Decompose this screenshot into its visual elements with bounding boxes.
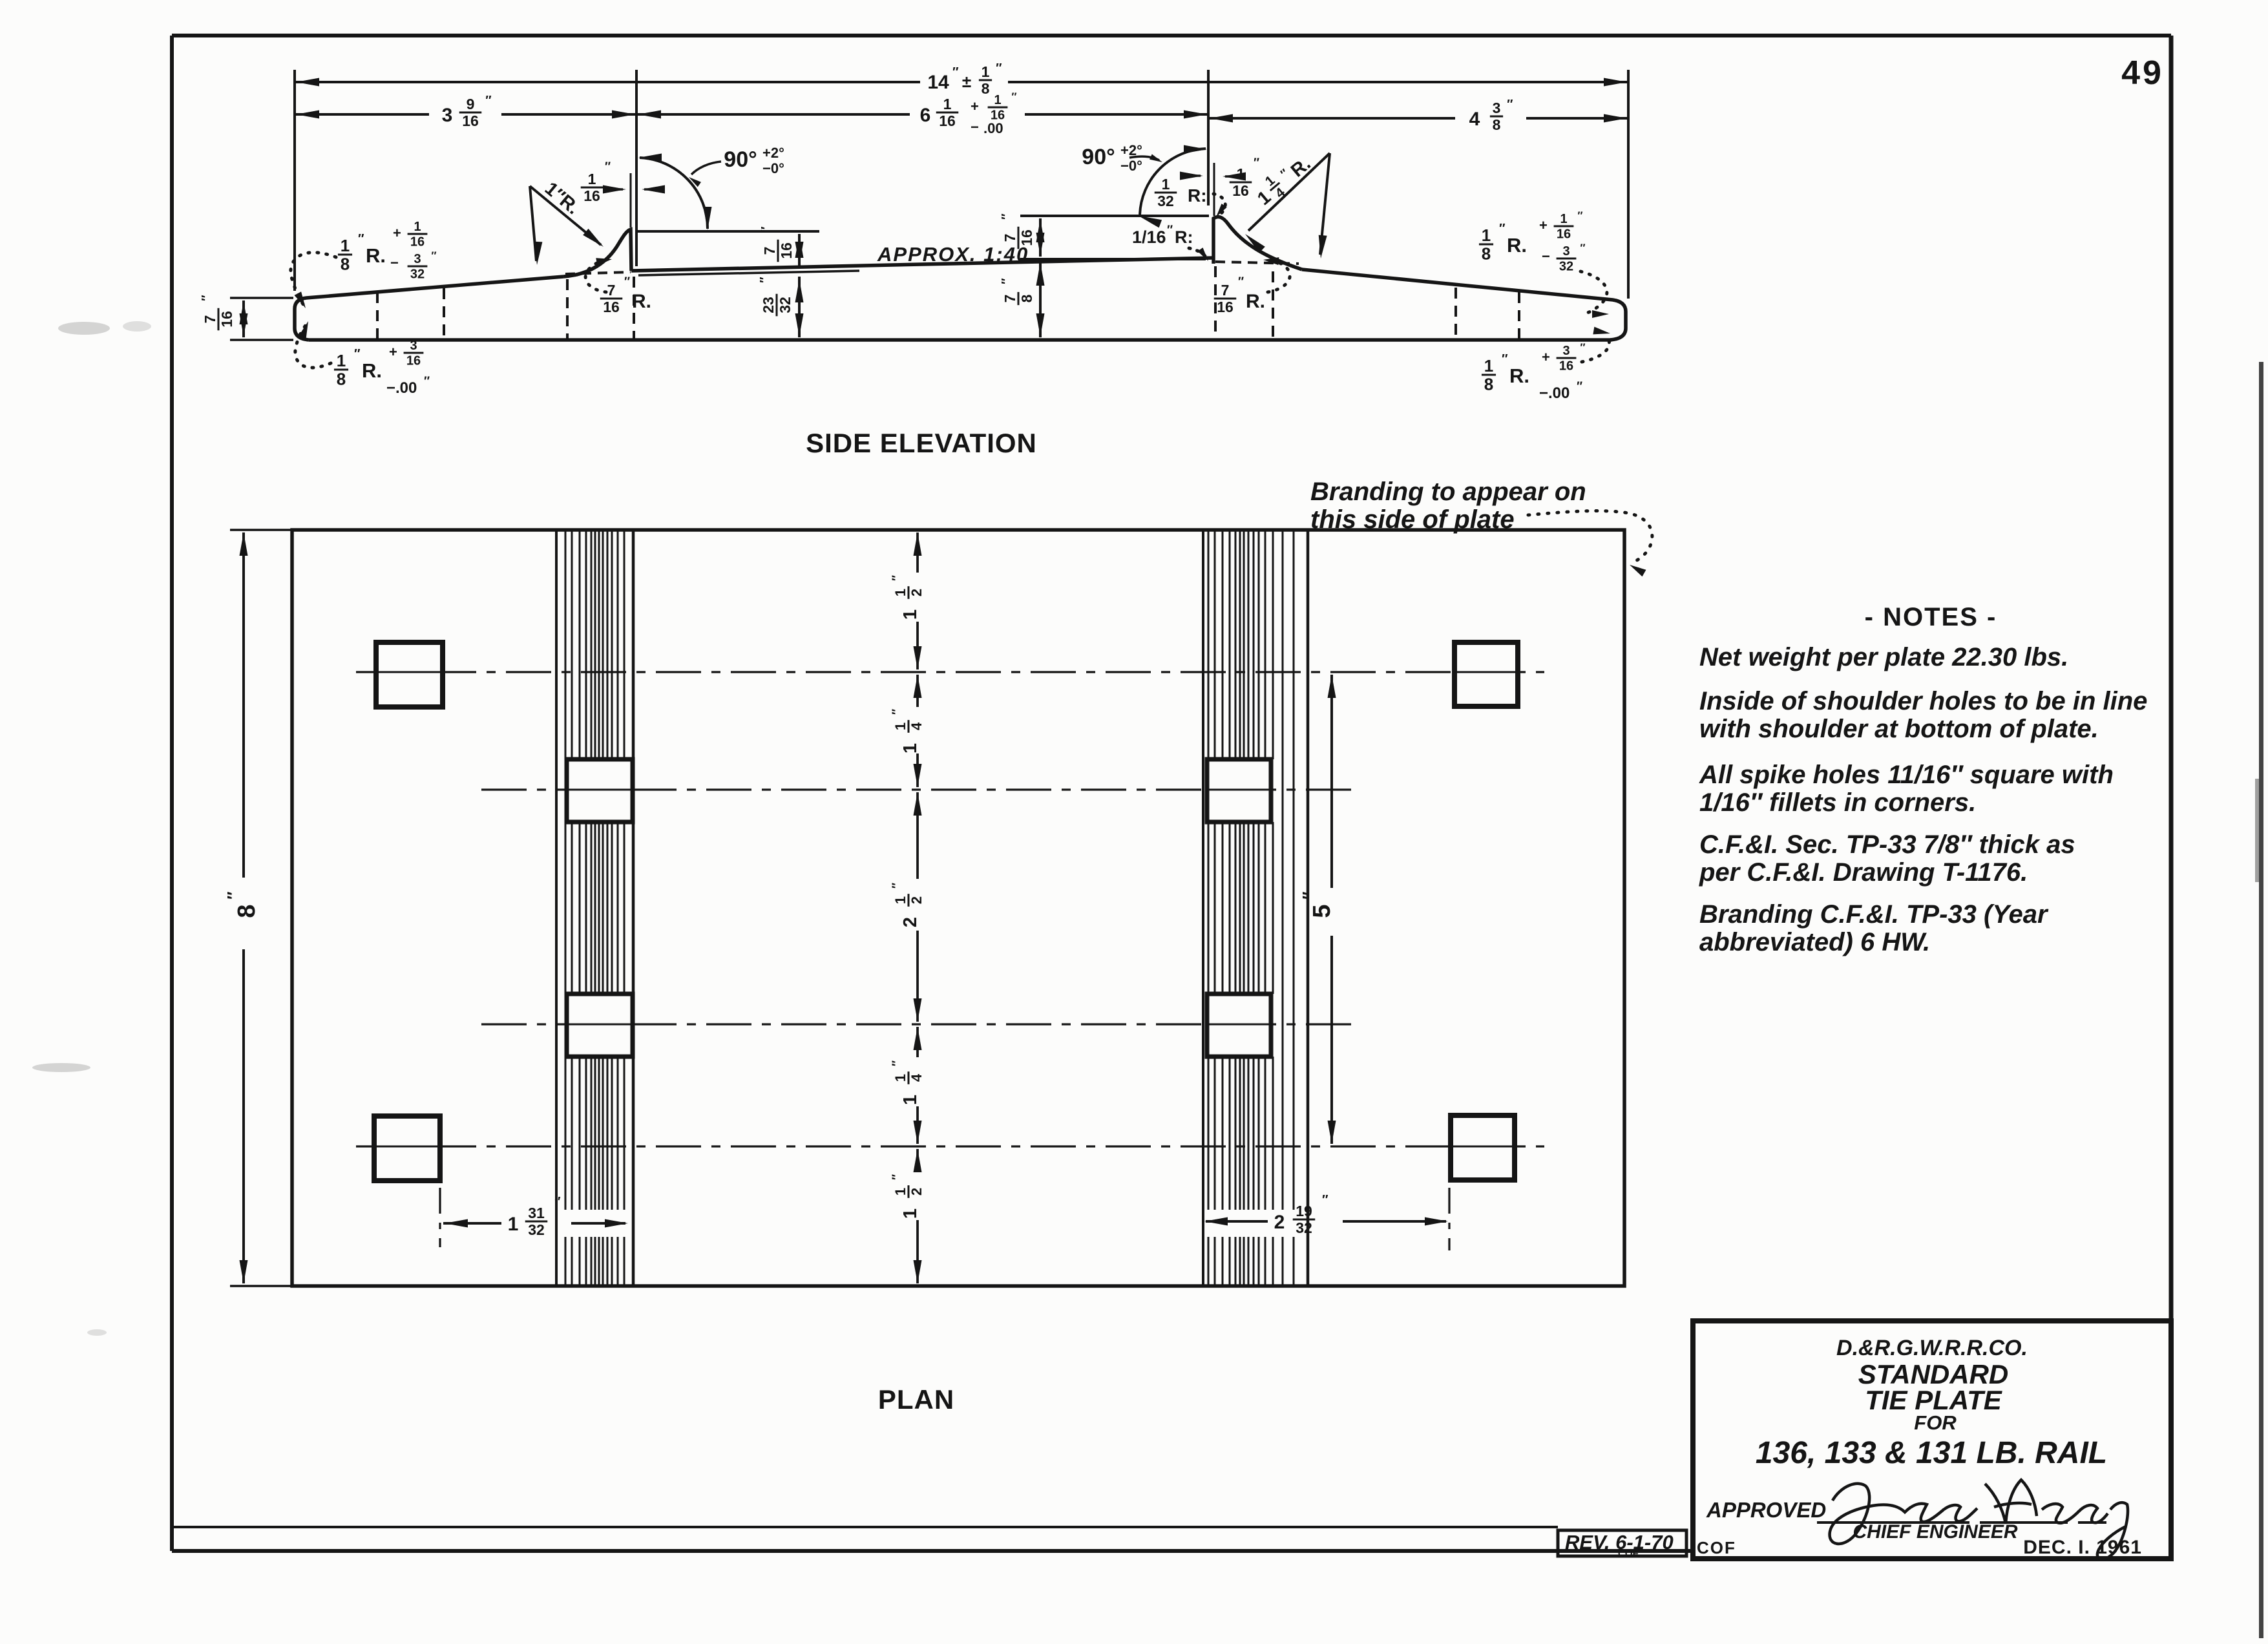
- svg-text:″: ″: [890, 709, 904, 715]
- svg-text:16: 16: [218, 311, 235, 328]
- svg-text:7: 7: [1221, 282, 1230, 299]
- svg-text:2: 2: [1274, 1212, 1285, 1233]
- svg-text:R.: R.: [632, 291, 651, 312]
- svg-text:1: 1: [337, 351, 346, 370]
- svg-text:16: 16: [778, 242, 795, 259]
- svg-text:4: 4: [908, 722, 925, 730]
- svg-text:4: 4: [908, 1073, 925, 1082]
- svg-text:″: ″: [1580, 341, 1585, 353]
- svg-text:1: 1: [1560, 212, 1567, 226]
- svg-text:1: 1: [1484, 356, 1493, 375]
- svg-text:8: 8: [337, 369, 346, 388]
- svg-text:Branding to appear on: Branding to appear on: [1310, 478, 1586, 506]
- svg-text:7: 7: [1002, 295, 1018, 303]
- svg-text:+: +: [389, 344, 397, 360]
- svg-text:″: ″: [1011, 90, 1016, 103]
- svg-text:7: 7: [202, 315, 218, 324]
- svg-text:2: 2: [900, 917, 921, 927]
- svg-text:8: 8: [1484, 374, 1493, 394]
- svg-text:″: ″: [224, 892, 243, 900]
- svg-text:″: ″: [358, 232, 364, 246]
- svg-text:136, 133 & 131 LB. RAIL: 136, 133 & 131 LB. RAIL: [1756, 1436, 2107, 1470]
- svg-text:″: ″: [605, 160, 611, 174]
- svg-text:3: 3: [1562, 244, 1570, 258]
- svg-text:″: ″: [424, 375, 430, 388]
- svg-text:APPROX. 1:40: APPROX. 1:40: [877, 243, 1029, 266]
- svg-text:3: 3: [1562, 344, 1570, 358]
- svg-text:3: 3: [414, 252, 421, 266]
- svg-text:R:: R:: [1188, 185, 1207, 205]
- svg-text:″: ″: [1000, 213, 1014, 220]
- svg-text:1/16″ fillets in corners.: 1/16″ fillets in corners.: [1699, 788, 1976, 817]
- svg-text:19: 19: [1296, 1203, 1312, 1219]
- svg-text:″: ″: [1299, 892, 1318, 900]
- svg-text:TIE PLATE: TIE PLATE: [1865, 1385, 2003, 1415]
- svg-text:90°: 90°: [1082, 145, 1115, 169]
- svg-text:2: 2: [908, 589, 925, 596]
- svg-text:+2°: +2°: [762, 145, 784, 161]
- svg-text:1: 1: [892, 589, 908, 596]
- svg-text:16: 16: [603, 299, 620, 315]
- svg-text:32: 32: [777, 297, 793, 313]
- svg-text:″: ″: [890, 575, 904, 581]
- svg-text:″: ″: [624, 275, 630, 289]
- svg-text:R.: R.: [362, 359, 382, 382]
- svg-text:32: 32: [1559, 260, 1573, 274]
- svg-text:−: −: [390, 255, 399, 271]
- svg-text:.00: .00: [983, 120, 1003, 136]
- svg-text:1: 1: [341, 236, 350, 255]
- svg-text:16: 16: [1557, 227, 1571, 242]
- svg-text:SIDE ELEVATION: SIDE ELEVATION: [806, 428, 1037, 458]
- svg-text:32: 32: [410, 268, 425, 282]
- svg-text:1: 1: [892, 1074, 908, 1082]
- svg-text:1: 1: [892, 722, 908, 730]
- svg-text:14: 14: [927, 72, 949, 93]
- svg-text:2: 2: [908, 1188, 925, 1196]
- svg-text:″: ″: [1499, 222, 1506, 236]
- svg-text:1: 1: [1482, 226, 1491, 245]
- svg-text:1: 1: [982, 63, 990, 80]
- svg-text:″: ″: [758, 277, 772, 283]
- svg-text:All spike holes 11/16″ square: All spike holes 11/16″ square with: [1699, 761, 2114, 789]
- svg-text:″: ″: [1577, 209, 1582, 222]
- svg-text:8: 8: [1018, 294, 1035, 302]
- svg-text:16: 16: [939, 112, 956, 129]
- svg-text:Inside of shoulder holes to be: Inside of shoulder holes to be in line: [1699, 687, 2147, 715]
- svg-text:32: 32: [528, 1221, 545, 1238]
- svg-text:Net weight per plate 22.30 lb: Net weight per plate 22.30 lbs.: [1699, 643, 2068, 671]
- svg-text:PLAN: PLAN: [878, 1384, 954, 1415]
- svg-text:COF: COF: [1697, 1538, 1736, 1557]
- svg-text:16: 16: [1559, 359, 1573, 374]
- svg-text:16: 16: [1018, 229, 1035, 246]
- svg-text:16: 16: [1217, 299, 1234, 315]
- svg-text:1: 1: [1162, 176, 1170, 193]
- svg-text:1: 1: [900, 609, 921, 620]
- svg-text:C.F.&I. Sec. TP-33 7/8″ thic: C.F.&I. Sec. TP-33 7/8″ thick as: [1699, 830, 2075, 859]
- svg-text:″: ″: [890, 1174, 904, 1180]
- svg-text:″: ″: [1502, 352, 1508, 366]
- svg-text:1: 1: [900, 743, 921, 753]
- svg-text:R.: R.: [366, 244, 386, 267]
- svg-text:2: 2: [908, 896, 925, 904]
- svg-text:1: 1: [994, 93, 1001, 107]
- svg-text:3: 3: [442, 105, 453, 126]
- svg-text:+: +: [393, 225, 401, 241]
- svg-text:″: ″: [485, 93, 491, 107]
- svg-text:per C.F.&I. Drawing T-1176.: per C.F.&I. Drawing T-1176.: [1699, 858, 2028, 887]
- svg-text:9: 9: [467, 96, 475, 112]
- svg-text:−: −: [971, 119, 979, 135]
- svg-text:16: 16: [410, 235, 425, 249]
- svg-text:8: 8: [1493, 116, 1501, 133]
- svg-text:APPROVED: APPROVED: [1706, 1498, 1826, 1522]
- svg-text:1: 1: [892, 896, 908, 904]
- svg-text:16: 16: [583, 187, 600, 204]
- svg-text:abbreviated) 6 HW.: abbreviated) 6 HW.: [1699, 928, 1930, 956]
- svg-text:1: 1: [588, 171, 596, 187]
- svg-text:1: 1: [414, 220, 421, 234]
- svg-text:±: ±: [962, 72, 971, 91]
- svg-text:5: 5: [1308, 904, 1336, 918]
- svg-text:1/16: 1/16: [1132, 227, 1166, 247]
- svg-text:″: ″: [1254, 156, 1259, 170]
- svg-text:- NOTES -: - NOTES -: [1865, 603, 1997, 631]
- svg-text:−.00: −.00: [386, 379, 417, 397]
- svg-text:8: 8: [1482, 244, 1491, 263]
- svg-text:″: ″: [1238, 275, 1244, 289]
- svg-text:7: 7: [1002, 234, 1018, 242]
- svg-text:31: 31: [528, 1205, 545, 1221]
- svg-text:″: ″: [759, 226, 773, 233]
- svg-text:R.: R.: [1509, 364, 1529, 387]
- svg-text:8: 8: [982, 80, 990, 97]
- svg-text:1: 1: [943, 96, 952, 112]
- svg-text:1: 1: [900, 1208, 921, 1219]
- svg-text:COF: COF: [1618, 1548, 1639, 1559]
- svg-text:″: ″: [952, 65, 959, 79]
- svg-text:this side of plate: this side of plate: [1310, 505, 1515, 534]
- svg-text:6: 6: [920, 105, 931, 126]
- svg-text:″: ″: [431, 249, 436, 262]
- svg-text:16: 16: [406, 354, 421, 368]
- svg-text:R:: R:: [1175, 227, 1193, 247]
- svg-text:−.00: −.00: [1539, 385, 1570, 402]
- svg-text:32: 32: [1296, 1219, 1312, 1236]
- svg-text:8: 8: [341, 254, 350, 273]
- svg-text:CHIEF ENGINEER: CHIEF ENGINEER: [1853, 1521, 2017, 1543]
- svg-text:3: 3: [1493, 100, 1501, 116]
- svg-text:8: 8: [233, 904, 260, 918]
- svg-text:″: ″: [1322, 1193, 1328, 1207]
- svg-text:″: ″: [427, 336, 432, 348]
- svg-text:32: 32: [1157, 193, 1174, 209]
- svg-text:″: ″: [996, 61, 1002, 75]
- svg-text:″: ″: [200, 295, 214, 301]
- svg-text:3: 3: [410, 339, 417, 353]
- svg-text:49: 49: [2121, 54, 2164, 92]
- svg-text:16: 16: [462, 112, 479, 129]
- svg-text:1: 1: [508, 1214, 519, 1235]
- svg-text:16: 16: [1232, 182, 1249, 199]
- svg-text:+: +: [1542, 349, 1550, 365]
- svg-text:−: −: [1542, 248, 1550, 264]
- svg-text:+: +: [971, 98, 979, 114]
- svg-text:+: +: [1539, 217, 1548, 233]
- svg-text:1: 1: [900, 1095, 921, 1105]
- svg-text:R.: R.: [1507, 234, 1527, 257]
- svg-text:″: ″: [1000, 278, 1014, 284]
- svg-text:″: ″: [890, 883, 904, 889]
- svg-text:″: ″: [354, 347, 361, 361]
- svg-text:FOR: FOR: [1914, 1411, 1957, 1434]
- svg-text:23: 23: [760, 297, 777, 313]
- svg-text:D.&R.G.W.R.R.CO.: D.&R.G.W.R.R.CO.: [1836, 1336, 2028, 1360]
- svg-text:1: 1: [892, 1188, 908, 1196]
- svg-text:−0°: −0°: [1120, 158, 1142, 174]
- svg-text:DEC. I. 1961: DEC. I. 1961: [2023, 1537, 2142, 1558]
- svg-text:7: 7: [761, 247, 778, 255]
- svg-text:7: 7: [607, 282, 616, 299]
- svg-text:4: 4: [1469, 109, 1480, 130]
- svg-text:″: ″: [1580, 242, 1585, 254]
- svg-text:″: ″: [1167, 224, 1173, 237]
- svg-text:R.: R.: [1246, 291, 1265, 312]
- svg-text:″: ″: [890, 1060, 904, 1066]
- svg-text:″: ″: [1577, 380, 1582, 394]
- svg-text:Branding C.F.&I. TP-33 (Year: Branding C.F.&I. TP-33 (Year: [1699, 900, 2049, 929]
- svg-text:″: ″: [554, 1195, 561, 1209]
- svg-text:−0°: −0°: [762, 160, 784, 176]
- svg-text:″: ″: [1507, 97, 1513, 111]
- svg-text:with shoulder at bottom of pla: with shoulder at bottom of plate.: [1699, 715, 2099, 743]
- svg-text:90°: 90°: [724, 147, 757, 172]
